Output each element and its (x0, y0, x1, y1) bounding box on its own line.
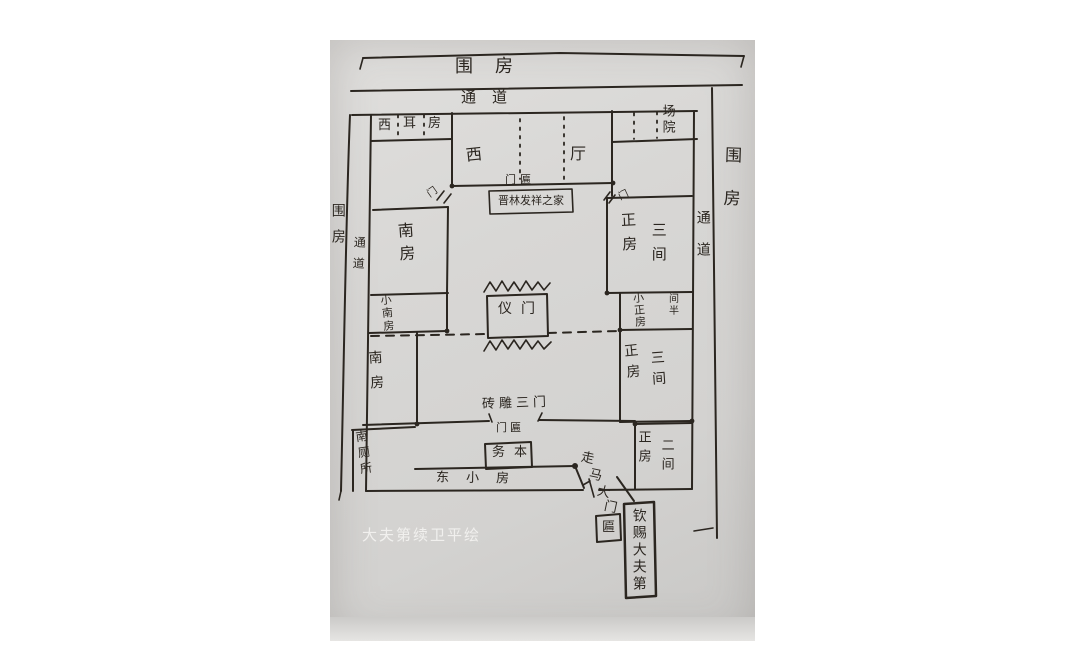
floor-plan-photo: 围房 通道 围房 通道 围房 通道 西 耳 房 西 厅 门匾 晋林发祥之家 场院… (0, 0, 1080, 648)
brick-gate-label: 砖雕三门 (482, 396, 550, 412)
south-room-upper-label: 南房 (394, 221, 414, 268)
yard-label: 场院 (660, 104, 674, 136)
right-band-label: 围房 (719, 146, 740, 233)
horse-gate-char-ma: 马 (588, 468, 604, 484)
small-main-room-note: 间半 (666, 293, 677, 317)
ear-room-char-west: 西 (378, 119, 391, 133)
gate-plaque-text: 务本 (492, 446, 536, 460)
west-hall-char-ting: 厅 (570, 146, 586, 163)
gate-plaque-label: 门匾 (496, 422, 524, 434)
horse-gate-char-zou: 走 (580, 451, 596, 467)
imperial-plaque-text: 钦赐大夫第 (631, 508, 646, 593)
west-hall-char-xi: 西 (465, 146, 483, 164)
main-room-1-name: 正房 (619, 212, 637, 261)
main-room-3-bays: 二间 (659, 438, 673, 476)
main-room-2-bays: 三间 (649, 350, 667, 393)
east-small-rooms-label: 东小房 (436, 471, 526, 486)
top-band-label: 围房 (455, 58, 535, 77)
plan-drawing (0, 0, 1080, 648)
left-band-label: 围房 (330, 203, 345, 255)
horse-gate-char-men: 门 (603, 500, 619, 516)
ear-room-char-er: 耳 (403, 117, 416, 131)
main-room-2-name: 正房 (622, 342, 641, 385)
main-room-3-name: 正房 (636, 430, 650, 468)
ceremonial-gate-label: 仪门 (498, 302, 544, 317)
small-main-room-name: 小正房 (631, 292, 646, 329)
left-passage-label: 通道 (351, 236, 366, 279)
top-passage-label: 通道 (461, 90, 523, 106)
right-passage-label: 通道 (695, 210, 710, 274)
horse-gate-plaque-char: 匾 (602, 521, 615, 535)
watermark-text: 大夫第续卫平绘 (362, 528, 481, 544)
hall-plaque-text: 晋林发祥之家 (491, 195, 571, 207)
horse-gate-char-da: 大 (596, 485, 612, 501)
main-room-1-bays: 三间 (650, 222, 666, 270)
south-room-lower-label: 南房 (366, 350, 384, 401)
hall-partition-label: 门匾 (505, 174, 535, 186)
ear-room-char-fang: 房 (428, 117, 441, 131)
